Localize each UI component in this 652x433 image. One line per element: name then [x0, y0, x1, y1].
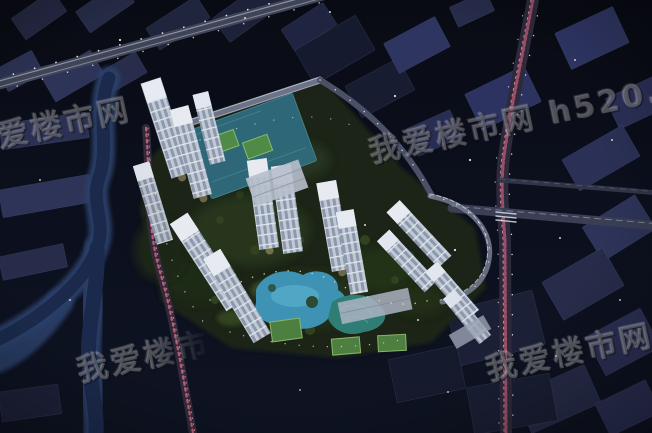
vignette: [0, 0, 652, 433]
aerial-night-render: 我爱楼市网 我爱楼市网 h520.cn 我爱楼市网 我爱楼市网 h520.cn: [0, 0, 652, 433]
render-canvas: [0, 0, 652, 433]
